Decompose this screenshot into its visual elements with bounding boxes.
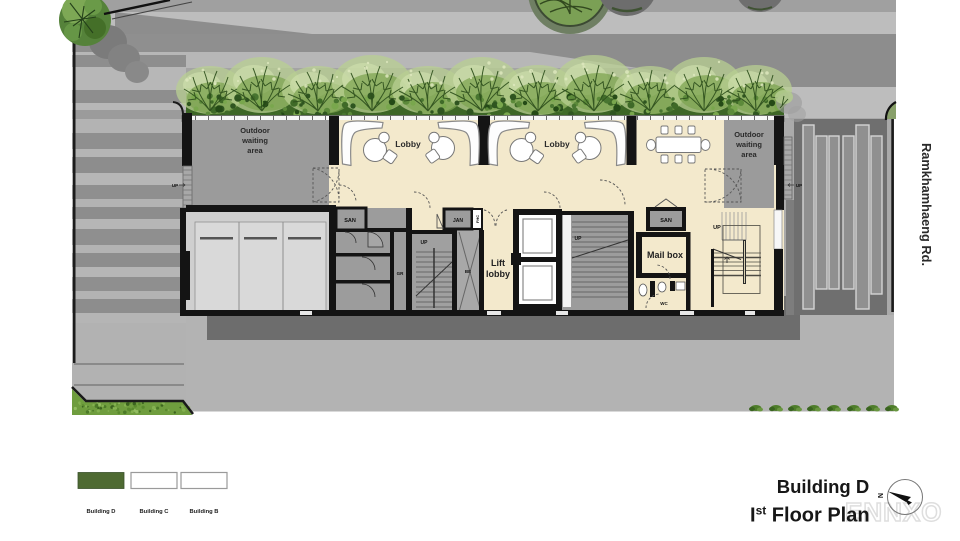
svg-text:UP: UP xyxy=(575,236,583,242)
svg-text:Building D: Building D xyxy=(87,509,116,515)
svg-text:N: N xyxy=(876,493,883,498)
svg-text:Lift: Lift xyxy=(491,258,505,268)
svg-text:area: area xyxy=(247,146,263,155)
svg-text:Building B: Building B xyxy=(190,509,219,515)
svg-text:FHC: FHC xyxy=(475,215,480,223)
svg-text:Mail box: Mail box xyxy=(647,250,683,260)
svg-text:Lobby: Lobby xyxy=(395,139,421,149)
svg-text:lobby: lobby xyxy=(486,269,510,279)
svg-text:Building C: Building C xyxy=(140,509,170,515)
svg-text:Building D: Building D xyxy=(777,476,869,497)
svg-text:SAN: SAN xyxy=(344,218,356,224)
svg-text:Outdoor: Outdoor xyxy=(734,130,764,139)
svg-text:Ist Floor Plan: Ist Floor Plan xyxy=(750,504,870,527)
svg-text:SAN: SAN xyxy=(660,218,672,224)
svg-text:GR: GR xyxy=(397,271,405,276)
svg-text:waiting: waiting xyxy=(241,136,268,145)
svg-text:Lobby: Lobby xyxy=(544,139,570,149)
svg-text:WC: WC xyxy=(660,301,668,306)
svg-text:UP: UP xyxy=(172,183,178,188)
svg-text:area: area xyxy=(741,150,757,159)
svg-text:waiting: waiting xyxy=(735,140,762,149)
svg-text:UP: UP xyxy=(421,240,429,246)
svg-text:UP: UP xyxy=(713,225,721,231)
svg-text:Outdoor: Outdoor xyxy=(240,126,270,135)
svg-text:UP: UP xyxy=(796,183,802,188)
svg-text:JAN: JAN xyxy=(453,218,463,224)
svg-text:BE: BE xyxy=(465,269,471,274)
svg-text:Ramkhamhaeng Rd.: Ramkhamhaeng Rd. xyxy=(919,143,934,266)
